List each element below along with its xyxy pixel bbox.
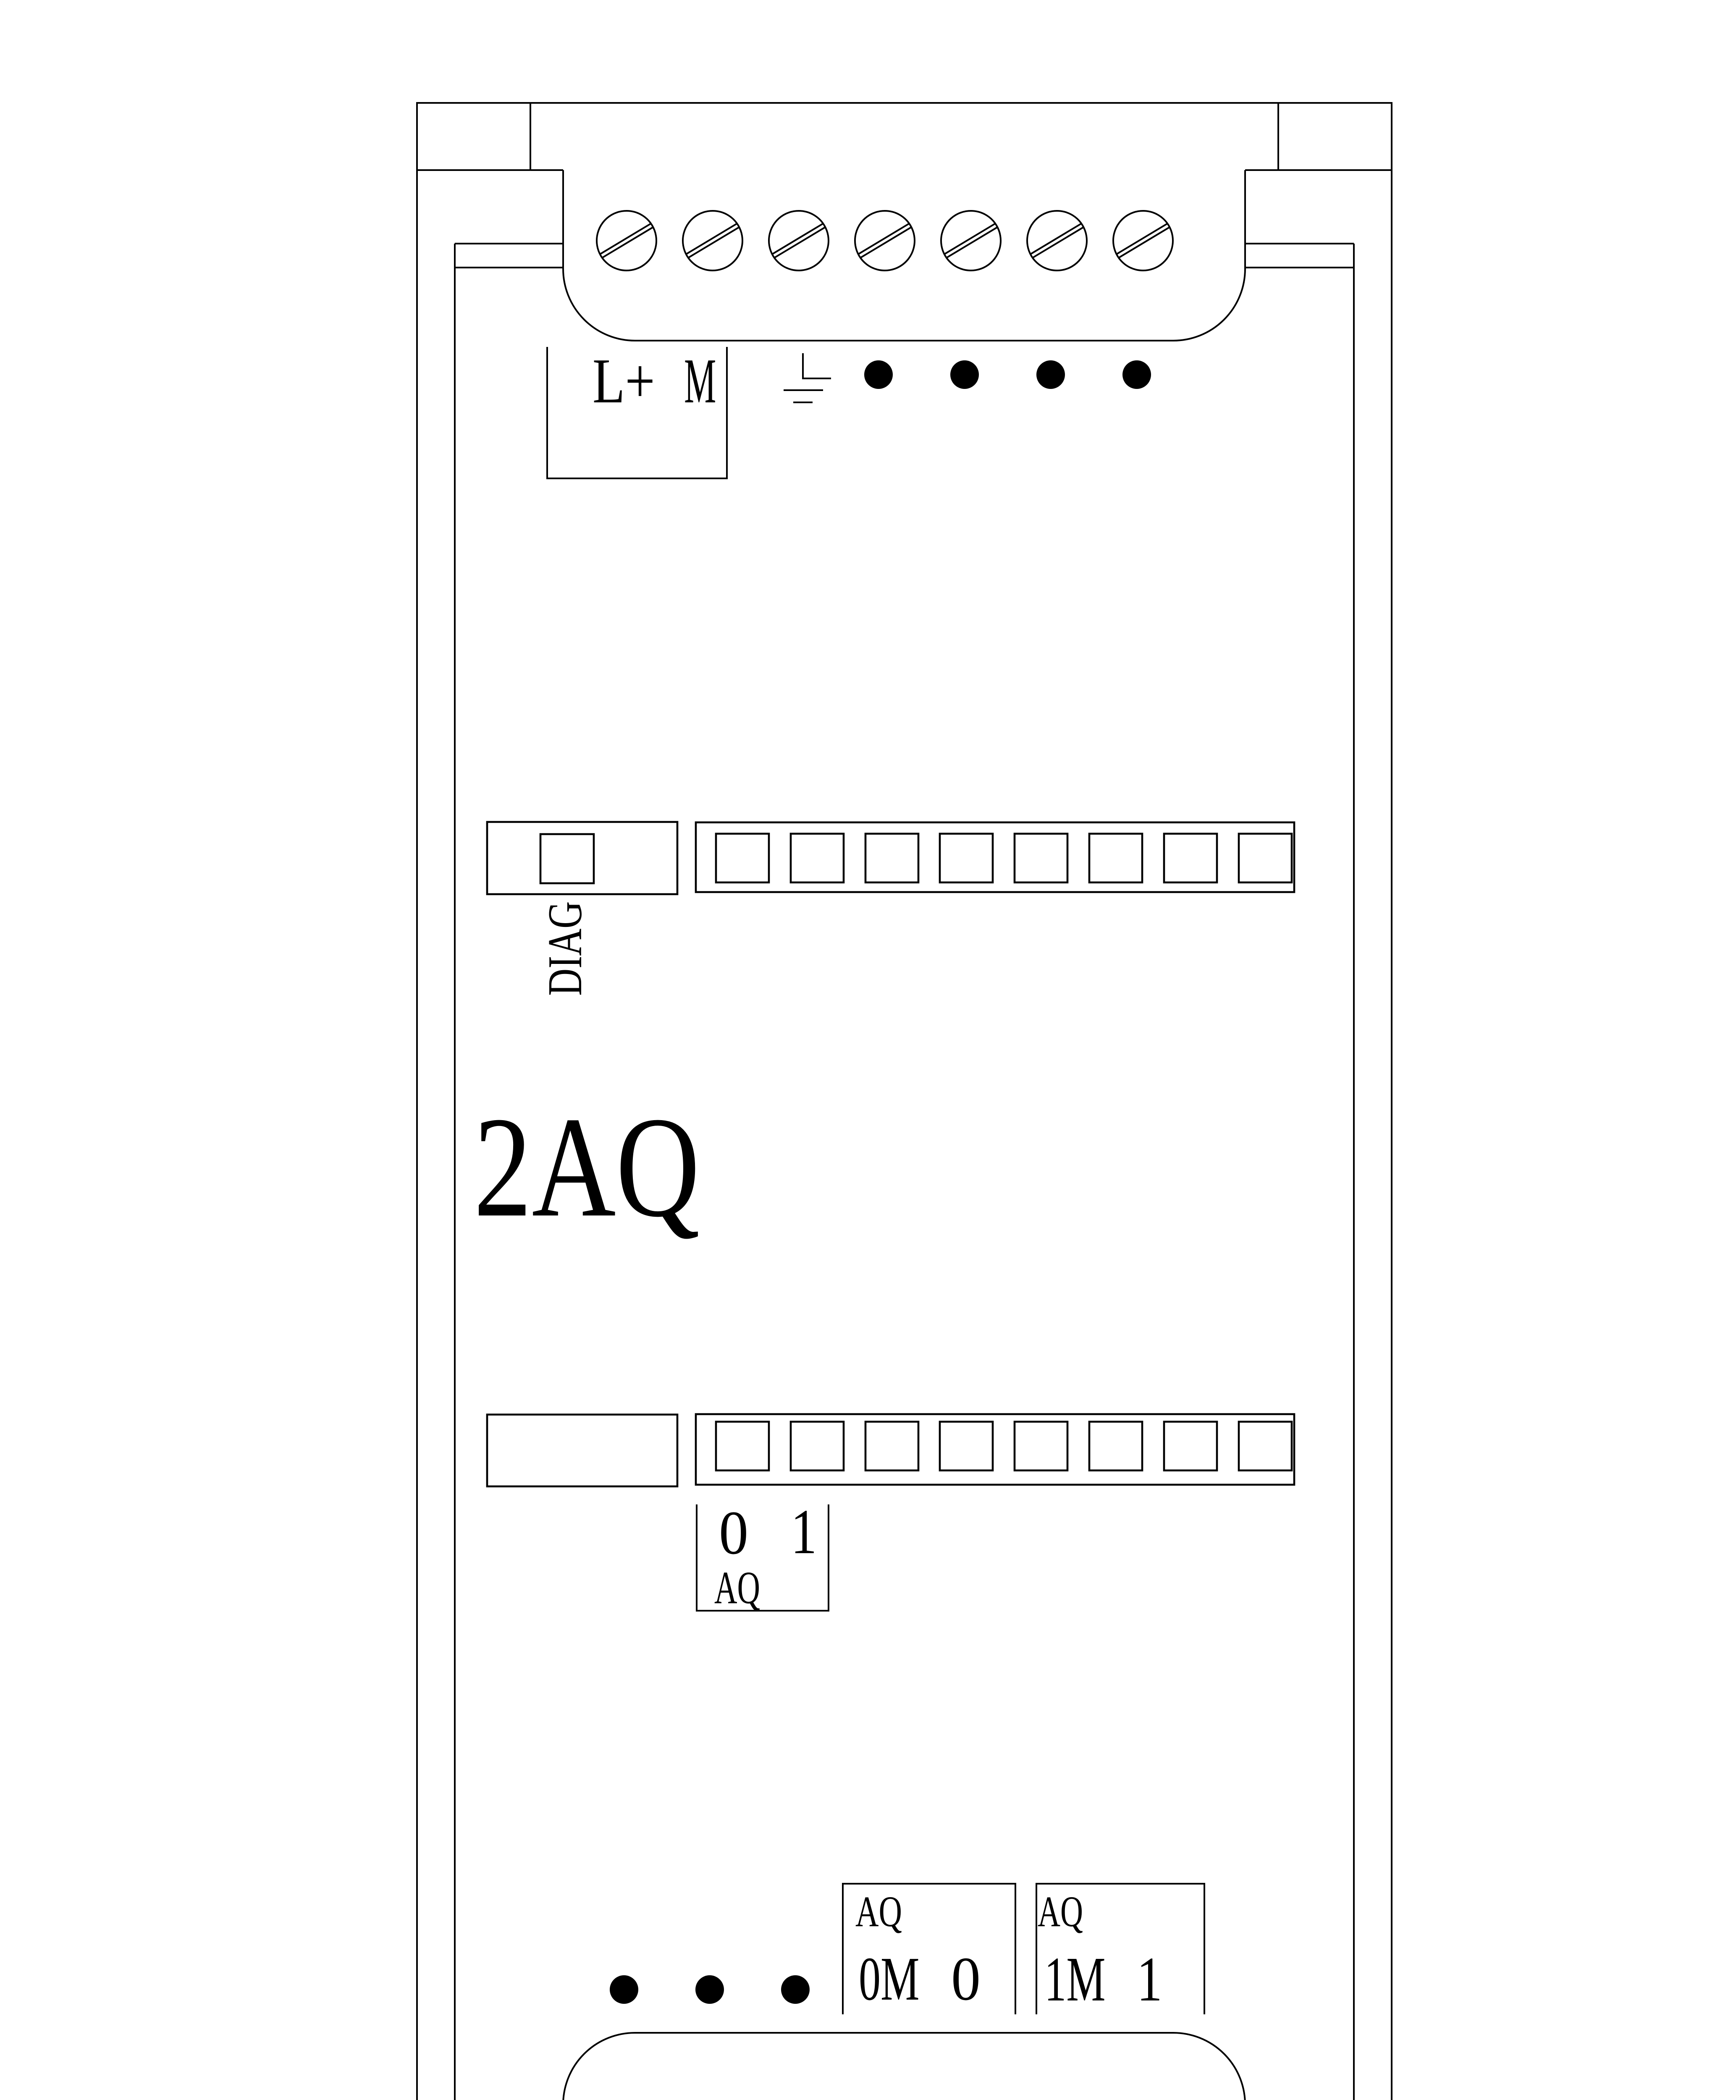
svg-text:M: M <box>684 345 716 416</box>
svg-text:0: 0 <box>951 1945 981 2013</box>
svg-text:L+: L+ <box>593 345 655 416</box>
svg-text:0M: 0M <box>859 1945 920 2013</box>
svg-text:0: 0 <box>719 1499 748 1567</box>
svg-text:AQ: AQ <box>1038 1888 1083 1936</box>
svg-text:1: 1 <box>1137 1944 1162 2014</box>
svg-text:1: 1 <box>791 1496 817 1567</box>
svg-text:1M: 1M <box>1044 1944 1106 2014</box>
svg-text:AQ: AQ <box>714 1562 760 1613</box>
svg-text:AQ: AQ <box>855 1888 902 1936</box>
svg-text:2AQ: 2AQ <box>474 1087 700 1247</box>
svg-text:DIAG: DIAG <box>538 901 592 996</box>
